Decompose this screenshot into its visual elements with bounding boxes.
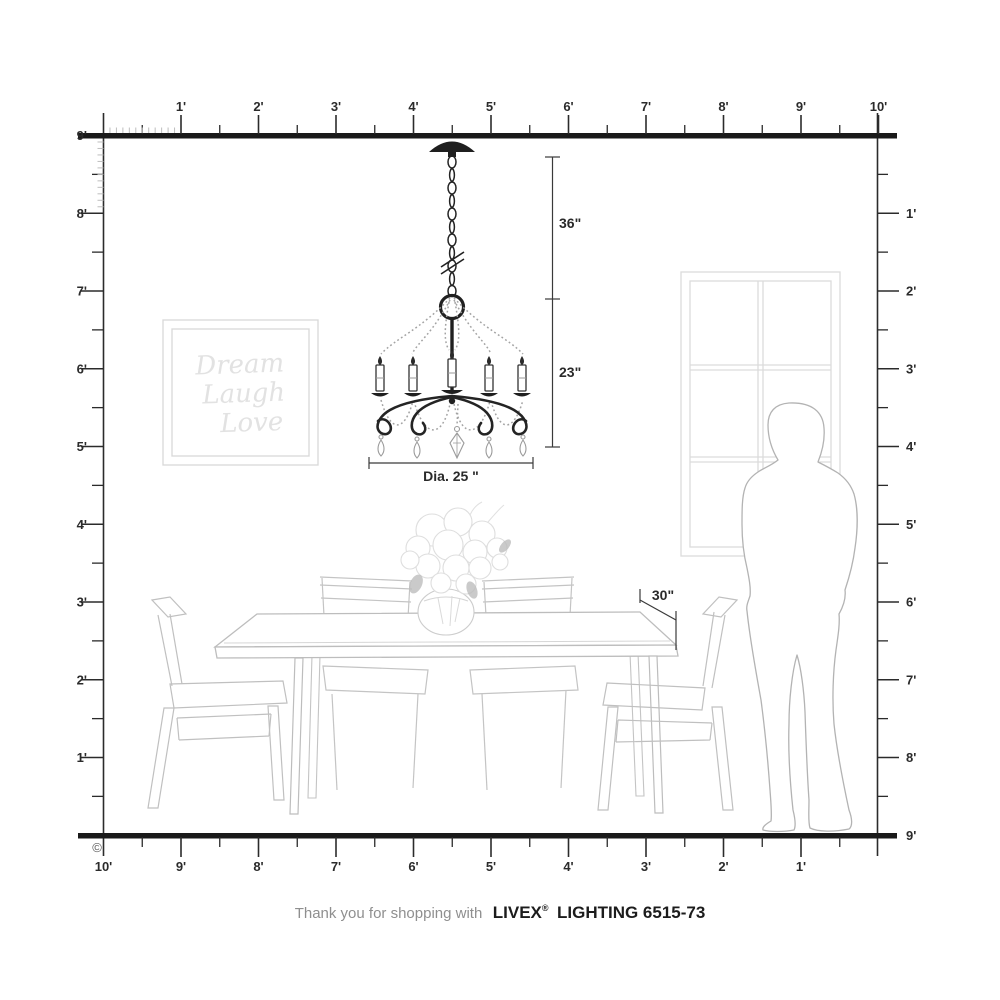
ruler-top-label-9': 9' [796,99,806,114]
ruler-top-label-6': 6' [563,99,573,114]
back-chair-right [470,577,578,790]
ruler-bottom-label-4': 4' [563,859,573,874]
crystal-drops [378,427,526,459]
room-scene: Dream Laugh Love [0,0,1000,1000]
ruler-left-label-6': 6' [77,361,87,376]
ruler-top-label-4': 4' [408,99,418,114]
ruler-top-label-1': 1' [176,99,186,114]
copyright-symbol: © [92,840,102,855]
ruler-top-label-2': 2' [253,99,263,114]
table-depth-label: 30" [652,587,674,603]
back-chair-left [320,577,428,790]
wall-art-text: Dream Laugh Love [194,348,286,439]
ruler-top-label-3': 3' [331,99,341,114]
ruler-left-label-9': 9' [77,128,87,143]
ceiling-line [78,133,897,139]
ruler-left-label-3': 3' [77,595,87,610]
ruler-bottom-label-7': 7' [331,859,341,874]
ruler-bottom-label-5': 5' [486,859,496,874]
ruler-left-label-5': 5' [77,439,87,454]
wall-art-line-1: Dream [194,348,285,381]
ruler-right-label-7': 7' [906,672,916,687]
ruler-right-label-2': 2' [906,284,916,299]
wall-art-line-3: Love [219,407,284,439]
ruler-right-label-1': 1' [906,206,916,221]
ruler-bottom-label-2': 2' [718,859,728,874]
ruler-bottom-label-3': 3' [641,859,651,874]
ruler-right-label-3': 3' [906,361,916,376]
ruler-bottom-label-1': 1' [796,859,806,874]
footer-product-number: LIGHTING 6515-73 [557,903,705,922]
table-edge [215,645,678,658]
chandelier-ring [441,296,464,319]
ruler-right-label-8': 8' [906,750,916,765]
chandelier-chain [448,156,456,297]
ruler-right-label-4': 4' [906,439,916,454]
dining-table [215,612,678,814]
ruler-left-label-1': 1' [77,750,87,765]
ruler-right-label-9': 9' [906,828,916,843]
ruler-bottom-label-6': 6' [408,859,418,874]
ruler-bottom-label-9': 9' [176,859,186,874]
fixture-height-label: 23" [559,364,581,380]
footer-message: Thank you for shopping with [295,905,483,922]
wall-art-line-2: Laugh [201,378,286,411]
ruler-top-label-8': 8' [718,99,728,114]
ruler-top-label-10': 10' [870,99,888,114]
chain-length-label: 36" [559,215,581,231]
registered-trademark-symbol: ® [542,903,549,913]
floor-line [78,833,897,839]
footer-brand: LIVEX [493,903,542,922]
ruler-left-label-4': 4' [77,517,87,532]
ruler-bottom-label-10': 10' [95,859,113,874]
ruler-right-label-5': 5' [906,517,916,532]
ruler-right-label-6': 6' [906,595,916,610]
ruler-bottom-label-8': 8' [253,859,263,874]
chain-break-marks [441,252,464,274]
ruler-top-label-7': 7' [641,99,651,114]
ruler-top-label-5': 5' [486,99,496,114]
footer: Thank you for shopping with LIVEX® LIGHT… [0,903,1000,923]
chandelier-canopy [429,142,475,153]
ruler-left-label-2': 2' [77,672,87,687]
ruler-left-label-8': 8' [77,206,87,221]
ruler-left-label-7': 7' [77,284,87,299]
chandelier [371,142,531,459]
fixture-diameter-label: Dia. 25 " [423,468,479,484]
product-dimension-diagram: Dream Laugh Love [0,0,1000,1000]
